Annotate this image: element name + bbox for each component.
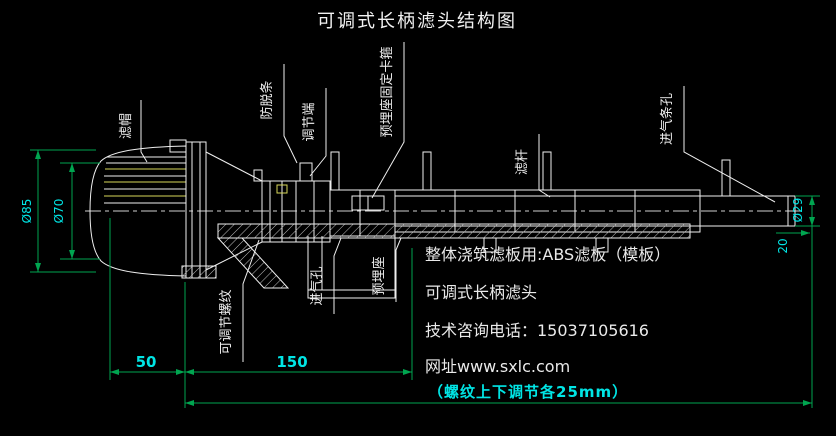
part-label-air-inlet-hole: 进气孔 — [309, 266, 325, 305]
info-line-abs-plate: 整体浇筑滤板用:ABS滤板（模板） — [425, 245, 670, 264]
dim-text-20: 20 — [776, 238, 790, 253]
dimension-dia29: Ø29 — [791, 196, 820, 226]
part-label-filter-rod: 滤杆 — [515, 149, 530, 175]
filter-plate-hatch-band — [218, 224, 690, 238]
dimension-20: 20 — [776, 233, 810, 254]
dim-text-dia29: Ø29 — [791, 198, 805, 223]
rod-end-tube — [700, 160, 795, 226]
seat-section — [330, 152, 395, 236]
dim-text-50: 50 — [136, 353, 157, 371]
dim-text-dia70: Ø70 — [52, 199, 66, 224]
part-label-air-slot-holes: 进气条孔 — [659, 93, 675, 145]
drawing-title: 可调式长柄滤头结构图 — [317, 11, 517, 32]
thread-sleeve-hatch — [218, 238, 288, 288]
dimension-50: 50 — [110, 218, 185, 408]
cad-drawing-canvas: 可调式长柄滤头结构图 — [0, 0, 836, 436]
dim-text-dia85: Ø85 — [20, 199, 34, 224]
filter-head-structure-drawing: 可调式长柄滤头结构图 — [0, 0, 836, 436]
fixing-clamp — [352, 196, 384, 210]
dim-note-text: （螺纹上下调节各25mm） — [428, 383, 628, 401]
leader-lines — [141, 42, 775, 362]
part-label-adjustable-thread: 可调节螺纹 — [219, 289, 234, 354]
flange — [182, 142, 216, 278]
part-label-filter-cap: 滤帽 — [118, 113, 134, 139]
info-text-block: 整体浇筑滤板用:ABS滤板（模板） 可调式长柄滤头 技术咨询电话：1503710… — [425, 245, 670, 376]
filter-rod-body — [395, 152, 700, 232]
info-line-website: 网址www.sxlc.com — [425, 357, 570, 376]
filter-cap — [90, 140, 186, 276]
part-label-embedded-seat-clamp: 预埋座固定卡箍 — [379, 46, 395, 137]
part-label-anti-slip-strip: 防脱条 — [259, 80, 275, 119]
part-label-adjusting-end: 调节端 — [302, 102, 317, 141]
part-label-embedded-seat: 预埋座 — [372, 256, 387, 295]
info-line-phone: 技术咨询电话：15037105616 — [425, 321, 649, 340]
info-line-product-name: 可调式长柄滤头 — [425, 283, 537, 302]
dim-text-150: 150 — [276, 353, 307, 371]
